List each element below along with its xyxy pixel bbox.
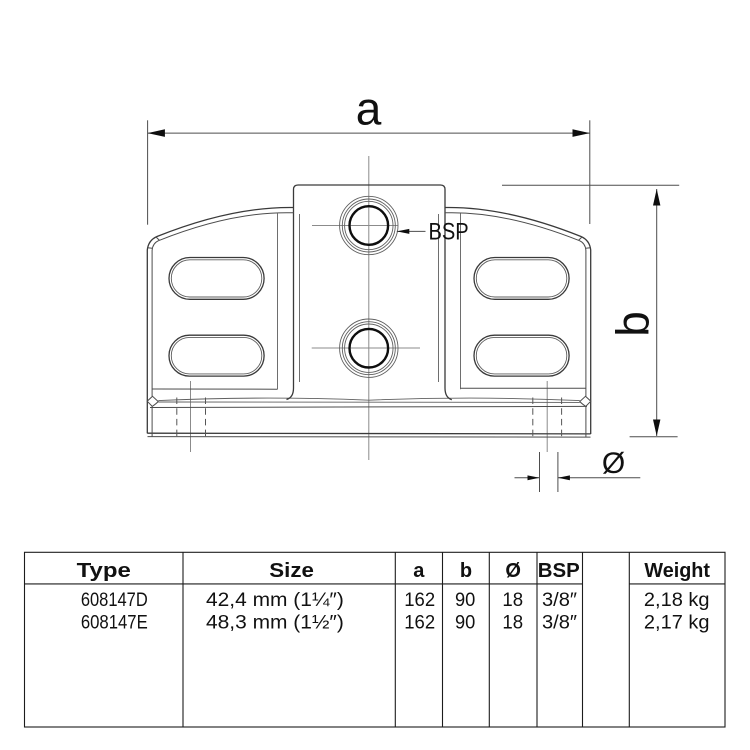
svg-text:608147D: 608147D [81, 590, 148, 611]
svg-text:Type: Type [77, 560, 131, 582]
svg-text:Weight: Weight [644, 560, 710, 582]
svg-text:48,3 mm (1½″): 48,3 mm (1½″) [206, 612, 344, 633]
svg-text:a: a [413, 560, 425, 582]
svg-text:3/8″: 3/8″ [542, 590, 577, 611]
svg-text:Size: Size [269, 560, 314, 582]
svg-text:90: 90 [455, 590, 475, 611]
svg-text:162: 162 [404, 612, 435, 633]
svg-text:90: 90 [455, 612, 475, 633]
svg-text:Ø: Ø [505, 560, 521, 582]
svg-text:BSP: BSP [429, 219, 469, 246]
svg-text:BSP: BSP [538, 560, 580, 582]
svg-text:Ø: Ø [602, 447, 625, 480]
svg-text:3/8″: 3/8″ [542, 612, 577, 633]
svg-text:18: 18 [502, 612, 523, 633]
svg-text:b: b [607, 311, 659, 337]
svg-text:a: a [356, 82, 382, 134]
svg-text:162: 162 [404, 590, 435, 611]
svg-text:b: b [460, 560, 472, 582]
svg-text:608147E: 608147E [81, 612, 148, 633]
svg-text:18: 18 [502, 590, 523, 611]
svg-text:42,4 mm (1¼″): 42,4 mm (1¼″) [206, 590, 344, 611]
svg-text:2,18 kg: 2,18 kg [644, 590, 710, 611]
svg-text:2,17 kg: 2,17 kg [644, 612, 710, 633]
